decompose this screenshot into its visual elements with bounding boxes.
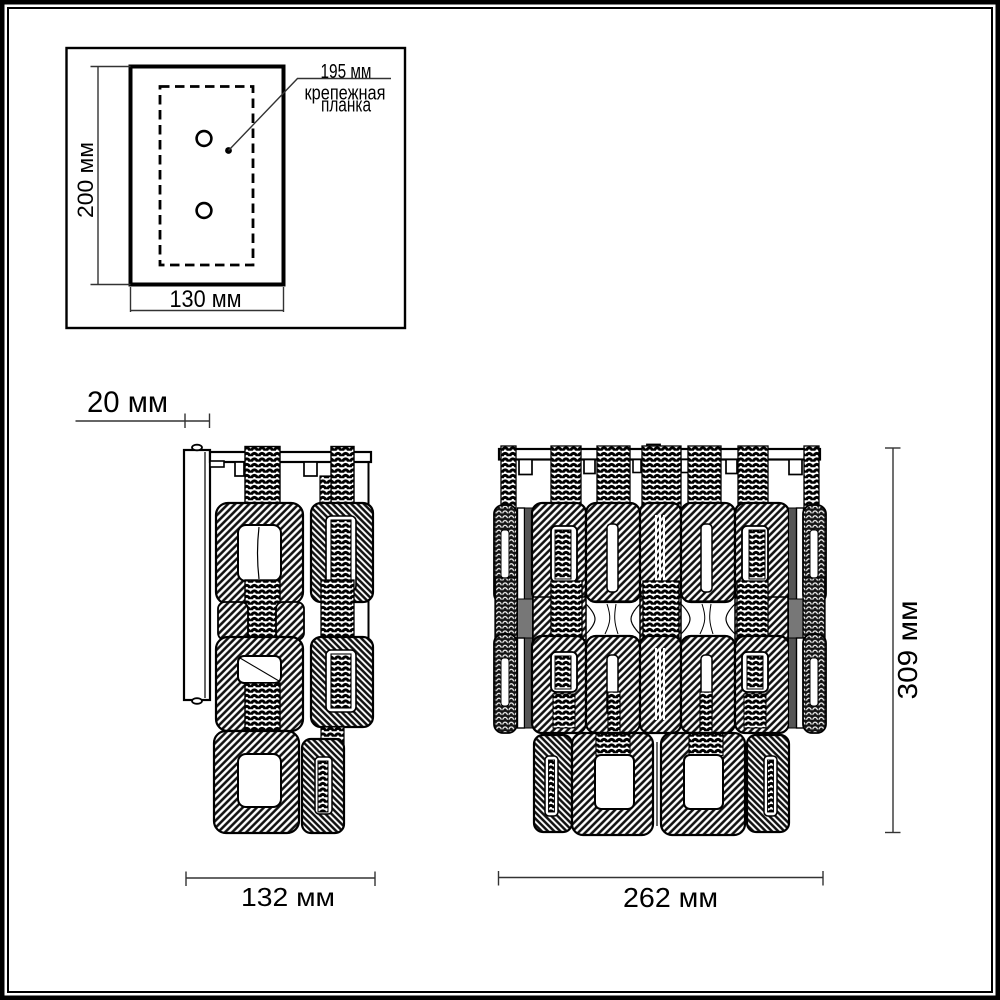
- svg-text:130 мм: 130 мм: [170, 286, 242, 313]
- svg-text:20 мм: 20 мм: [87, 386, 168, 419]
- svg-text:195 мм: 195 мм: [321, 61, 372, 83]
- svg-text:309 мм: 309 мм: [892, 601, 923, 700]
- svg-text:200 мм: 200 мм: [73, 142, 98, 218]
- svg-text:132 мм: 132 мм: [241, 882, 335, 912]
- svg-text:планка: планка: [321, 95, 372, 117]
- svg-text:262 мм: 262 мм: [623, 882, 718, 913]
